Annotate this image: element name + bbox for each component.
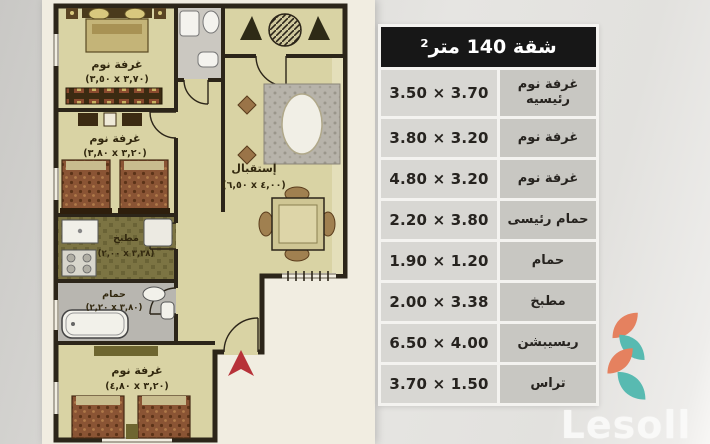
dimension-value: 3.70 × 1.50 (381, 365, 497, 403)
svg-text:مطبخ: مطبخ (113, 233, 139, 244)
svg-text:حمام: حمام (102, 289, 126, 300)
svg-text:(٦,٥٠ x ٤,٠٠): (٦,٥٠ x ٤,٠٠) (222, 180, 285, 191)
floor-plan: غرفة نوم (٣,٥٠ x ٣,٧٠) غرفة نوم (42, 0, 375, 444)
svg-text:غرفة نوم: غرفة نوم (111, 364, 162, 377)
dimension-value: 3.80 × 3.20 (381, 119, 497, 157)
svg-text:غرفة نوم: غرفة نوم (89, 132, 140, 145)
room-label: غرفة نوم (500, 160, 596, 198)
table-row: 3.80 × 3.20 غرفة نوم (381, 119, 596, 157)
floor-plan-drawing: غرفة نوم (٣,٥٠ x ٣,٧٠) غرفة نوم (42, 0, 375, 444)
dimension-value: 2.20 × 3.80 (381, 201, 497, 239)
dimension-value: 4.80 × 3.20 (381, 160, 497, 198)
dimension-value: 3.50 × 3.70 (381, 70, 497, 116)
lesoll-logo-icon (599, 310, 653, 410)
table-row: 2.20 × 3.80 حمام رئيسى (381, 201, 596, 239)
svg-text:(٢,٢٠ x ٣,٨٠): (٢,٢٠ x ٣,٨٠) (86, 303, 143, 313)
room-label: حمام رئيسى (500, 201, 596, 239)
lesoll-logo: Lesoll (546, 310, 706, 444)
table-title: شقة 140 متر² (420, 36, 556, 58)
svg-text:(٤,٨٠ x ٣,٢٠): (٤,٨٠ x ٣,٢٠) (105, 381, 168, 392)
svg-text:(٣,٨٠ x ٣,٢٠): (٣,٨٠ x ٣,٢٠) (83, 148, 146, 159)
dimension-value: 6.50 × 4.00 (381, 324, 497, 362)
room-label: حمام (500, 242, 596, 280)
dimension-value: 1.90 × 1.20 (381, 242, 497, 280)
svg-text:(٢,٠٠ x ٣,٣٨): (٢,٠٠ x ٣,٣٨) (98, 249, 155, 259)
table-row: 3.50 × 3.70 غرفة نوم رئيسيه (381, 70, 596, 116)
room-label: غرفة نوم (500, 119, 596, 157)
svg-text:غرفة نوم: غرفة نوم (91, 58, 142, 71)
table-header: شقة 140 متر² (381, 27, 596, 67)
svg-text:إستقبال: إستقبال (231, 162, 276, 175)
room-label: غرفة نوم رئيسيه (500, 70, 596, 116)
table-row: 1.90 × 1.20 حمام (381, 242, 596, 280)
table-row: 4.80 × 3.20 غرفة نوم (381, 160, 596, 198)
listing-photo: غرفة نوم (٣,٥٠ x ٣,٧٠) غرفة نوم (0, 0, 710, 444)
dimension-value: 2.00 × 3.38 (381, 283, 497, 321)
svg-text:(٣,٥٠ x ٣,٧٠): (٣,٥٠ x ٣,٧٠) (85, 74, 148, 85)
lesoll-logo-text: Lesoll (546, 406, 706, 444)
